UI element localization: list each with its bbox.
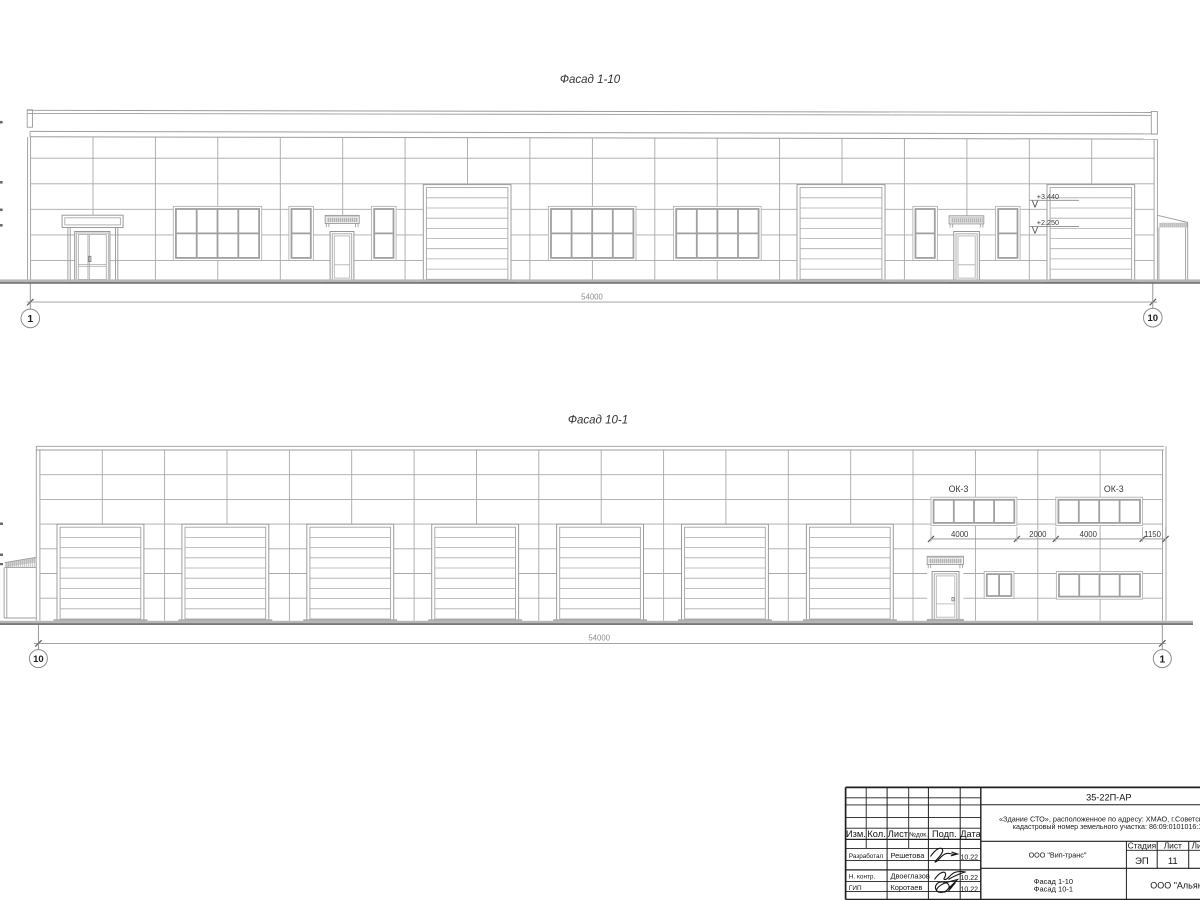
svg-text:Н. контр.: Н. контр. xyxy=(849,873,876,880)
svg-text:1: 1 xyxy=(1159,653,1165,665)
svg-text:10: 10 xyxy=(1148,313,1159,324)
svg-text:ООО "Вип-транс": ООО "Вип-транс" xyxy=(1029,851,1087,860)
svg-text:10: 10 xyxy=(33,654,44,665)
svg-text:ОК-3: ОК-3 xyxy=(1104,484,1124,494)
svg-text:Фасад 10-1: Фасад 10-1 xyxy=(568,415,628,427)
svg-text:Кол.: Кол. xyxy=(867,829,885,839)
svg-text:35-22П-АР: 35-22П-АР xyxy=(1086,793,1131,803)
svg-text:ГИП: ГИП xyxy=(849,885,862,892)
svg-text:Листов: Листов xyxy=(1192,841,1200,851)
svg-text:Двоеглазов: Двоеглазов xyxy=(891,872,930,881)
svg-text:Лист: Лист xyxy=(888,829,909,839)
svg-text:Коротаев: Коротаев xyxy=(891,883,923,892)
svg-text:Изм.: Изм. xyxy=(846,829,866,839)
svg-text:10.22: 10.22 xyxy=(961,886,979,893)
svg-text:Стадия: Стадия xyxy=(1128,841,1157,851)
svg-text:11: 11 xyxy=(1168,856,1178,867)
svg-text:Разработал: Разработал xyxy=(849,852,884,860)
svg-text:10.22: 10.22 xyxy=(961,875,979,882)
svg-text:Дата: Дата xyxy=(960,829,981,839)
svg-text:Решетова: Решетова xyxy=(891,851,926,860)
svg-text:1: 1 xyxy=(27,313,33,325)
svg-text:кадастровый номер земельного у: кадастровый номер земельного участка: 86… xyxy=(1013,823,1200,831)
svg-text:4000: 4000 xyxy=(1080,530,1098,539)
svg-text:1150: 1150 xyxy=(1144,530,1161,539)
svg-text:4000: 4000 xyxy=(951,530,969,539)
svg-text:10.22: 10.22 xyxy=(961,855,979,862)
svg-text:ОК-3: ОК-3 xyxy=(949,484,969,494)
svg-text:Фасад 1-10: Фасад 1-10 xyxy=(560,74,621,86)
svg-text:Лист: Лист xyxy=(1164,841,1182,851)
svg-text:+2.250: +2.250 xyxy=(1037,218,1059,227)
svg-text:№док.: №док. xyxy=(909,831,928,838)
svg-text:Подп.: Подп. xyxy=(932,829,957,839)
svg-text:Фасад 10-1: Фасад 10-1 xyxy=(1034,885,1073,894)
svg-text:ЭП: ЭП xyxy=(1135,856,1149,867)
svg-text:54000: 54000 xyxy=(581,292,603,301)
svg-text:ООО "Альянс": ООО "Альянс" xyxy=(1150,880,1200,890)
svg-text:+3.440: +3.440 xyxy=(1037,192,1059,201)
svg-text:2000: 2000 xyxy=(1029,530,1047,539)
svg-text:54000: 54000 xyxy=(588,634,610,643)
